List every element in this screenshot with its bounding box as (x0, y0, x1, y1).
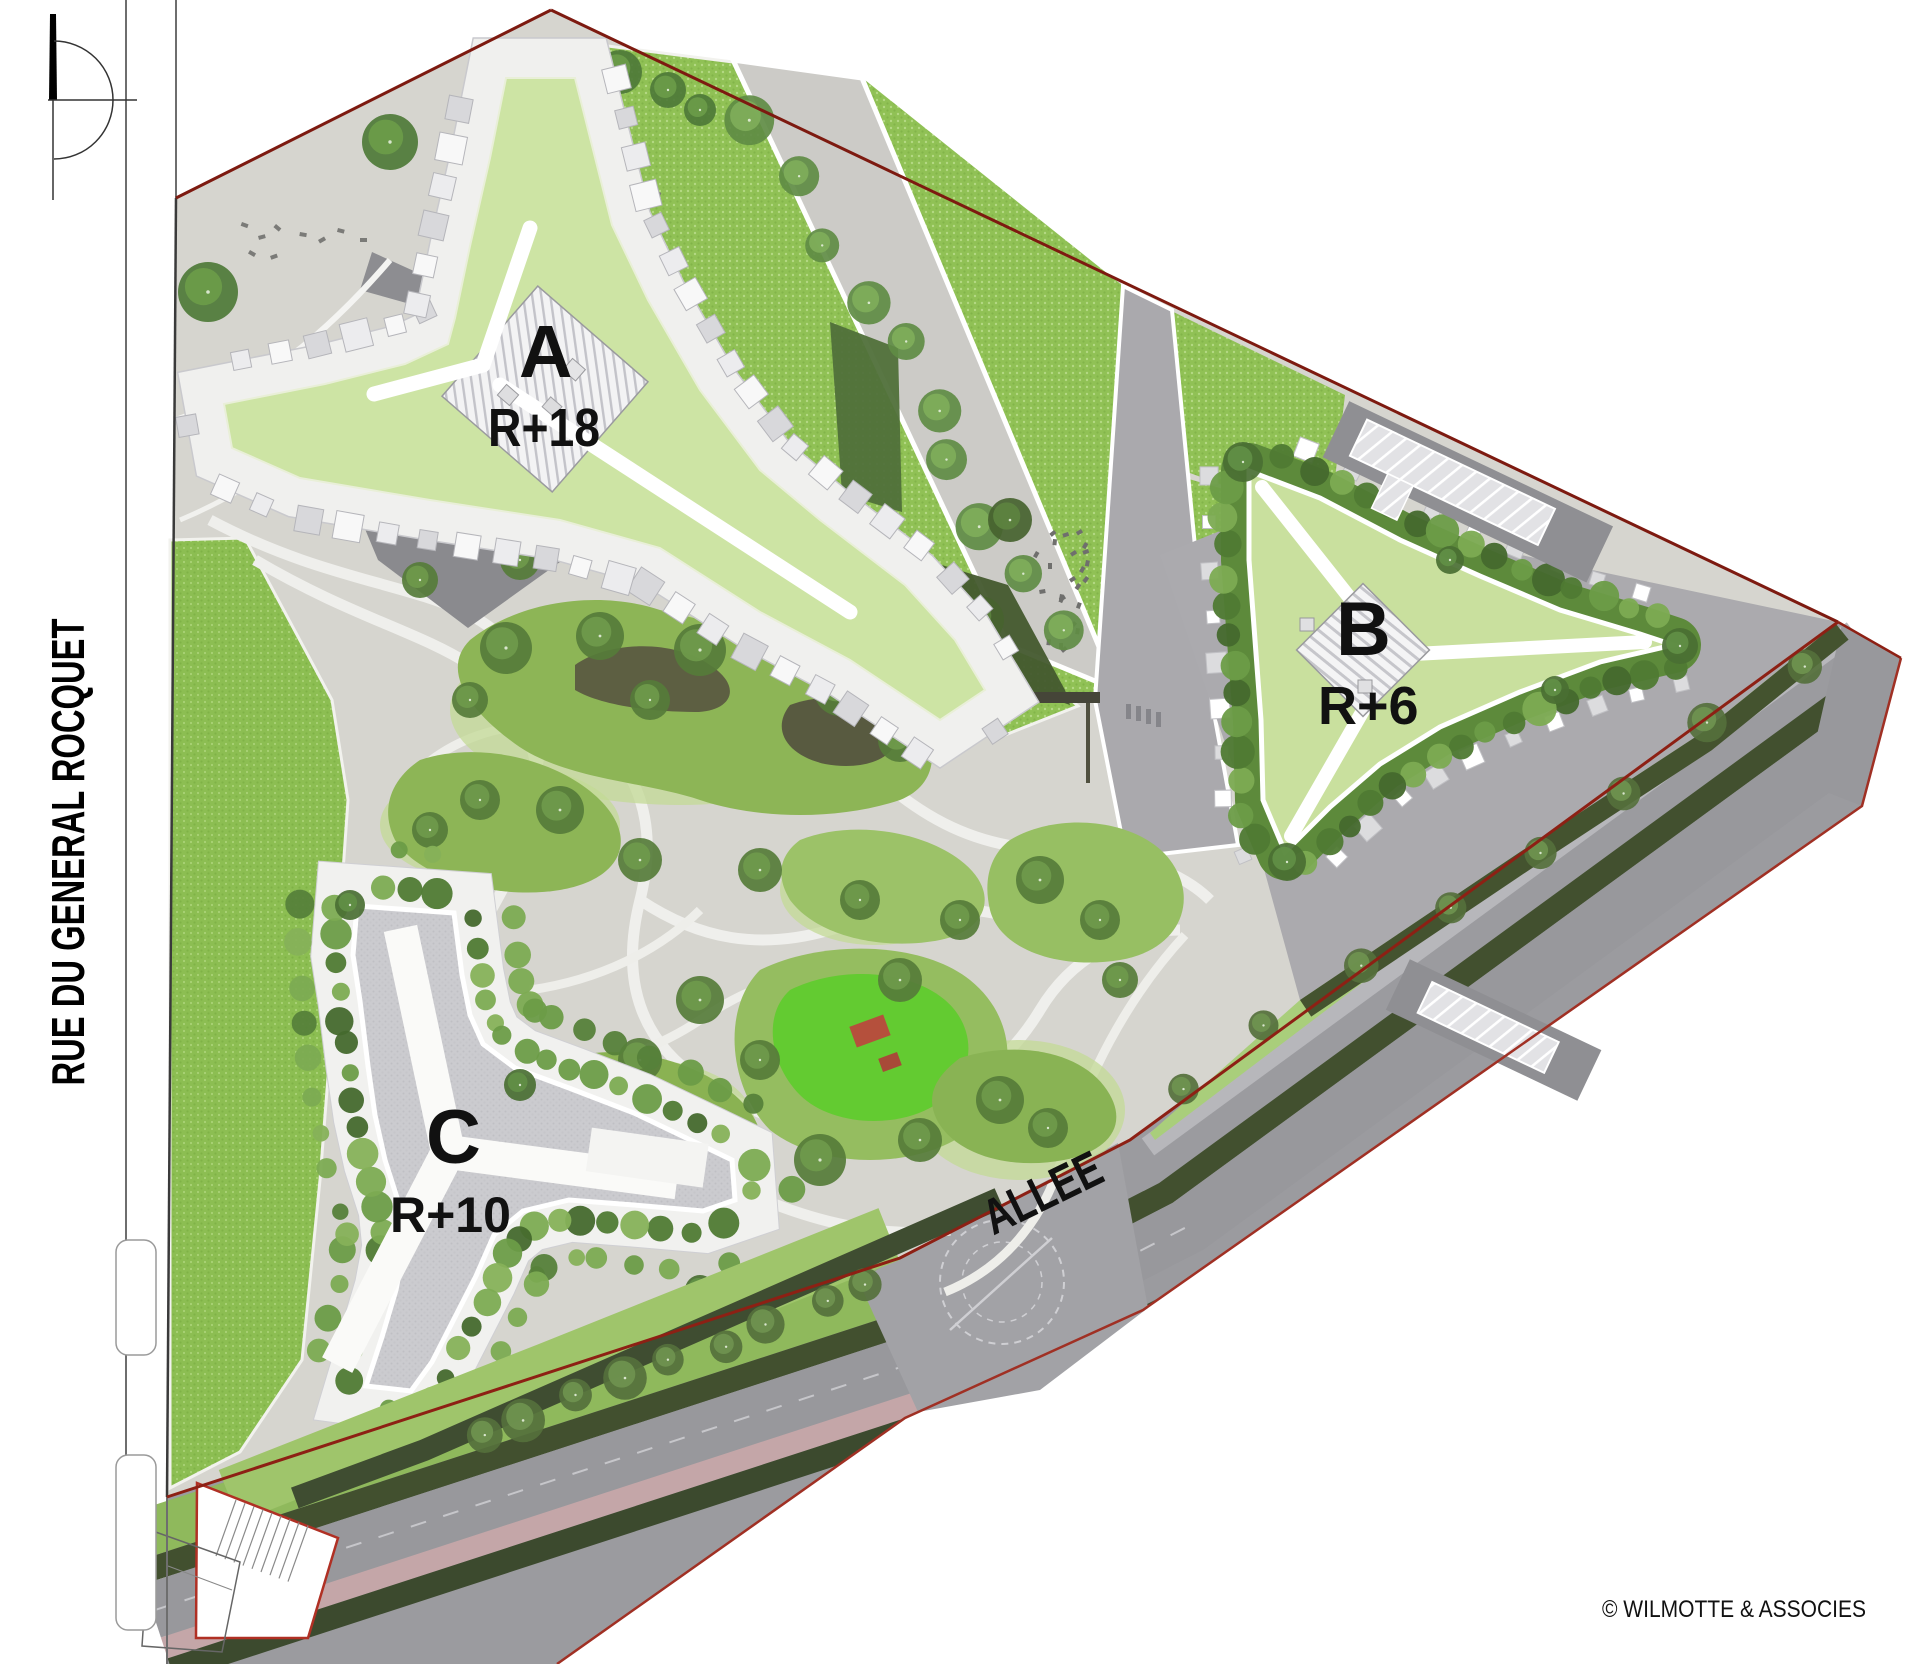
svg-text:R+18: R+18 (488, 398, 600, 458)
svg-text:A: A (519, 310, 572, 393)
svg-text:RUE DU GENERAL ROCQUET: RUE DU GENERAL ROCQUET (42, 619, 94, 1086)
svg-text:© WILMOTTE & ASSOCIES: © WILMOTTE & ASSOCIES (1602, 1596, 1866, 1623)
svg-text:R+6: R+6 (1318, 676, 1419, 736)
svg-text:B: B (1336, 587, 1391, 672)
svg-text:R+10: R+10 (390, 1187, 511, 1243)
svg-text:C: C (426, 1095, 481, 1180)
